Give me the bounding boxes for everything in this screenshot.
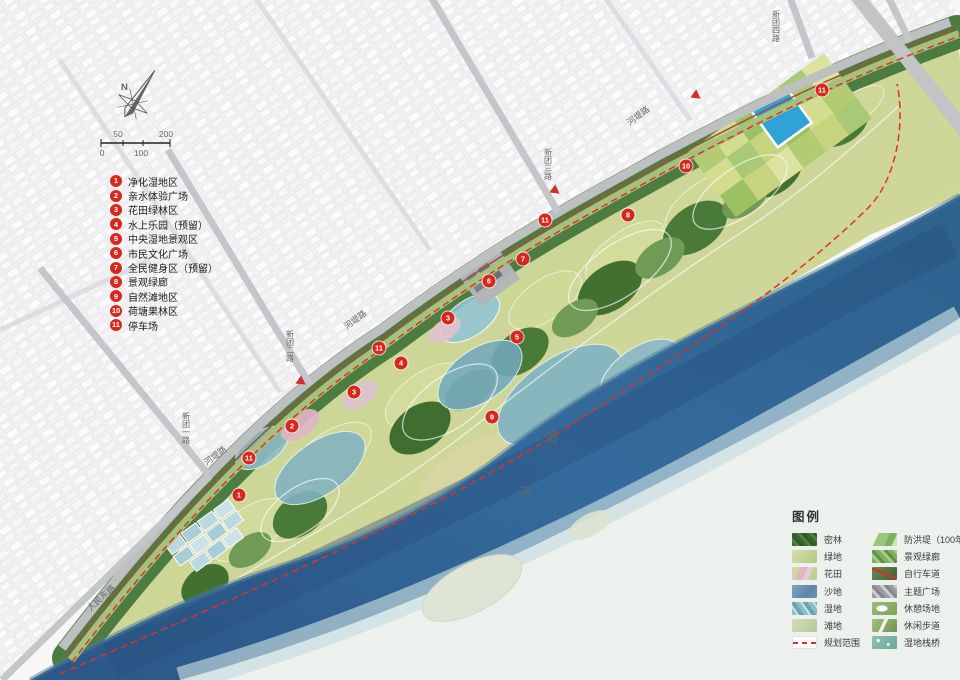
zone-label: 市民文化广场 bbox=[128, 246, 188, 261]
theme-plaza-swatch bbox=[872, 585, 897, 598]
zone-number-badge: 8 bbox=[110, 276, 122, 288]
legend-item: 湿地 bbox=[792, 600, 872, 617]
map-legend-title: 图例 bbox=[792, 506, 960, 525]
zone-label: 净化湿地区 bbox=[128, 174, 178, 189]
scale-50: 50 bbox=[113, 129, 123, 139]
zone-number-badge: 7 bbox=[110, 262, 122, 274]
map-marker: 3 bbox=[442, 312, 455, 325]
boardwalk-swatch bbox=[872, 636, 897, 649]
zone-number-badge: 1 bbox=[110, 175, 122, 187]
legend-item: 绿地 bbox=[792, 548, 872, 565]
wetland-swatch bbox=[792, 602, 817, 615]
zone-item: 5中央湿地景观区 bbox=[110, 232, 218, 246]
map-marker: 8 bbox=[622, 209, 635, 222]
xintuan4-road-label: 新团四路 bbox=[772, 9, 781, 42]
master-plan-map: 河堤路 河堤路 河堤路 人民东路 新团四路 新团三路 新团二路 新团一路 渭 河… bbox=[0, 0, 960, 680]
zone-label: 停车场 bbox=[128, 318, 158, 333]
scale-100: 100 bbox=[134, 148, 148, 158]
legend-item: 休憩场地 bbox=[872, 600, 960, 617]
zone-label: 荷塘果林区 bbox=[128, 303, 178, 318]
river-name-char2: 河 bbox=[518, 485, 531, 500]
zone-number-badge: 11 bbox=[110, 319, 122, 331]
zone-label: 水上乐园（预留） bbox=[128, 217, 208, 232]
map-marker: 7 bbox=[517, 253, 530, 266]
map-marker: 5 bbox=[511, 331, 524, 344]
flood-dike-swatch bbox=[872, 533, 897, 546]
zone-item: 4水上乐园（预留） bbox=[110, 217, 218, 231]
scale-0: 0 bbox=[100, 148, 105, 158]
map-marker: 11 bbox=[816, 84, 829, 97]
zone-item: 2亲水体验广场 bbox=[110, 188, 218, 202]
map-marker: 2 bbox=[286, 420, 299, 433]
bike-lane-swatch bbox=[872, 567, 897, 580]
zone-number-badge: 10 bbox=[110, 305, 122, 317]
green-corridor-swatch bbox=[872, 550, 897, 563]
zone-number-badge: 2 bbox=[110, 190, 122, 202]
map-marker: 11 bbox=[243, 452, 256, 465]
zone-label: 全民健身区（预留） bbox=[128, 260, 218, 275]
zone-item: 11停车场 bbox=[110, 318, 218, 332]
river-name-char1: 渭 bbox=[545, 430, 558, 445]
map-marker: 9 bbox=[486, 411, 499, 424]
zone-item: 7全民健身区（预留） bbox=[110, 260, 218, 274]
zone-number-badge: 3 bbox=[110, 204, 122, 216]
map-marker: 3 bbox=[348, 386, 361, 399]
zone-label: 景观绿廊 bbox=[128, 274, 168, 289]
zone-item: 8景观绿廊 bbox=[110, 275, 218, 289]
zone-item: 10荷塘果林区 bbox=[110, 304, 218, 318]
map-marker: 11 bbox=[539, 214, 552, 227]
flower-field-swatch bbox=[792, 567, 817, 580]
zone-item: 6市民文化广场 bbox=[110, 246, 218, 260]
trail-swatch bbox=[872, 619, 897, 632]
planning-boundary-swatch bbox=[792, 636, 817, 649]
legend-item: 防洪堤（100年） bbox=[872, 531, 960, 548]
map-marker: 1 bbox=[233, 489, 246, 502]
map-marker: 10 bbox=[680, 160, 693, 173]
legend-item: 自行车道 bbox=[872, 565, 960, 582]
zone-number-badge: 9 bbox=[110, 290, 122, 302]
zone-item: 1净化湿地区 bbox=[110, 174, 218, 188]
zone-item: 3花田绿林区 bbox=[110, 203, 218, 217]
sand-swatch bbox=[792, 585, 817, 598]
zone-label: 花田绿林区 bbox=[128, 202, 178, 217]
legend-item: 景观绿廊 bbox=[872, 548, 960, 565]
xintuan1-road-label: 新团一路 bbox=[182, 411, 191, 444]
scale-200: 200 bbox=[159, 129, 173, 139]
dense-forest-swatch bbox=[792, 533, 817, 546]
north-label: N bbox=[121, 82, 128, 93]
zone-label: 中央湿地景观区 bbox=[128, 231, 198, 246]
rest-ground-swatch bbox=[872, 602, 897, 615]
legend-item: 花田 bbox=[792, 565, 872, 582]
beach-swatch bbox=[792, 619, 817, 632]
legend-item: 主题广场 bbox=[872, 583, 960, 600]
legend-item: 湿地栈桥 bbox=[872, 634, 960, 651]
zone-number-badge: 4 bbox=[110, 218, 122, 230]
zone-legend: 1净化湿地区 2亲水体验广场 3花田绿林区 4水上乐园（预留） 5中央湿地景观区… bbox=[110, 174, 218, 332]
zone-item: 9自然滩地区 bbox=[110, 289, 218, 303]
xintuan3-road-label: 新团三路 bbox=[544, 147, 553, 180]
legend-item: 滩地 bbox=[792, 617, 872, 634]
legend-item: 密林 bbox=[792, 531, 872, 548]
map-marker: 4 bbox=[395, 357, 408, 370]
legend-item: 规划范围 bbox=[792, 634, 872, 651]
zone-number-badge: 6 bbox=[110, 247, 122, 259]
map-legend: 图例 密林 防洪堤（100年） 绿地 景观绿廊 花田 自行车道 沙地 主题广场 … bbox=[792, 506, 960, 651]
zone-label: 自然滩地区 bbox=[128, 289, 178, 304]
map-marker: 6 bbox=[483, 275, 496, 288]
zone-number-badge: 5 bbox=[110, 233, 122, 245]
legend-item: 沙地 bbox=[792, 583, 872, 600]
xintuan2-road-label: 新团二路 bbox=[286, 329, 295, 362]
legend-item: 休闲步道 bbox=[872, 617, 960, 634]
green-space-swatch bbox=[792, 550, 817, 563]
map-marker: 11 bbox=[373, 342, 386, 355]
zone-label: 亲水体验广场 bbox=[128, 188, 188, 203]
